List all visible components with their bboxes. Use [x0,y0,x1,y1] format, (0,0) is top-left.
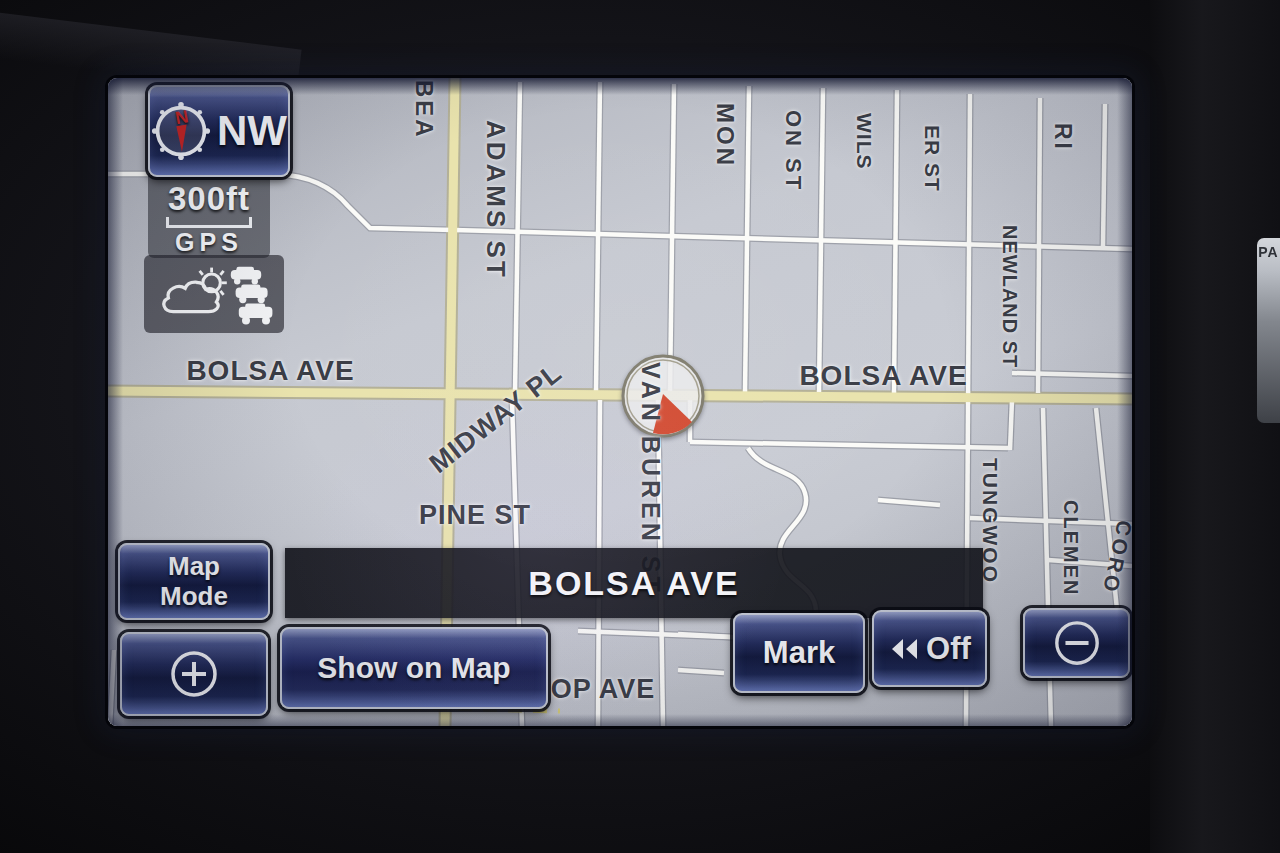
nav-touchscreen[interactable]: BEA ADAMS ST MON ON ST WILS ER ST RI NEW… [108,78,1132,726]
mark-button[interactable]: Mark [733,613,865,693]
double-left-arrow-icon [888,636,922,662]
map-mode-label: Map Mode [139,552,249,610]
street-label-bea: BEA [410,80,438,140]
off-label: Off [926,631,971,667]
street-label-er-st: ER ST [920,125,944,192]
bezel-pa-button[interactable]: PA [1257,238,1280,423]
zoom-out-button[interactable] [1023,608,1130,678]
street-label-newland-st: NEWLAND ST [998,225,1021,368]
status-indicator-panel[interactable] [144,255,284,333]
street-label-ri: RI [1049,123,1076,152]
street-label-on-st: ON ST [780,110,806,192]
bezel-pa-label: PA [1258,244,1278,260]
street-label-pine-st: PINE ST [414,500,536,531]
street-label-mon: MON [711,103,739,168]
plus-circle-icon [168,648,220,700]
show-on-map-button[interactable]: Show on Map [280,627,548,709]
compass-rose-icon: N [151,101,211,161]
compass-heading-button[interactable]: N NW [148,85,290,177]
street-label-op-ave: OP AVE [538,674,668,705]
map-scale-bracket [166,217,252,228]
current-street-name: BOLSA AVE [528,564,739,603]
street-label-wils: WILS [852,113,876,170]
compass-direction-label: NW [217,107,287,155]
current-street-bar: BOLSA AVE [285,548,983,618]
zoom-in-button[interactable] [120,632,268,716]
minus-circle-icon [1052,618,1102,668]
gps-status-label: GPS [148,228,270,257]
street-label-bolsa-ave-east: BOLSA AVE [756,360,1011,392]
dashboard-right-panel [1150,0,1280,853]
mark-label: Mark [763,635,835,671]
street-label-bolsa-ave-west: BOLSA AVE [178,355,363,387]
guidance-off-button[interactable]: Off [872,610,987,687]
show-on-map-label: Show on Map [317,651,510,685]
street-label-adams-st: ADAMS ST [480,120,511,280]
map-scale-panel: 300ft GPS [148,170,270,258]
map-mode-button[interactable]: Map Mode [118,543,270,620]
street-label-clemen: CLEMEN [1059,500,1082,596]
traffic-icon [231,267,273,325]
map-scale-value: 300ft [148,180,270,218]
weather-icon [164,268,227,312]
weather-traffic-icons [148,262,280,326]
